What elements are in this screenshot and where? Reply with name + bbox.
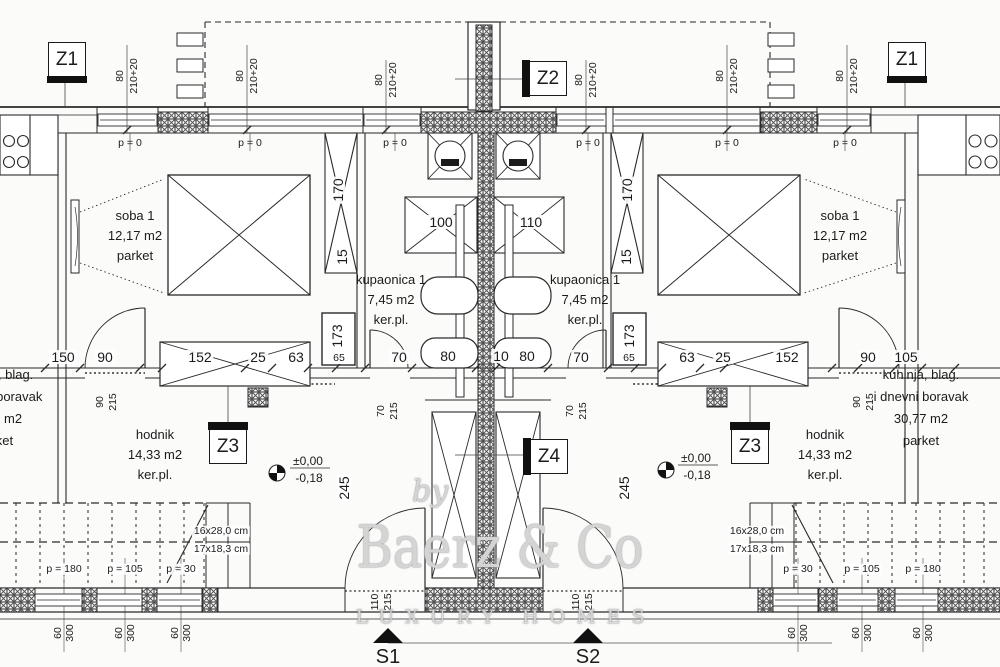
dim-245-right: 245 bbox=[617, 474, 631, 501]
stair-risers1-right: 16x28,0 cm bbox=[728, 526, 786, 537]
dim-60-l1: 60 bbox=[53, 627, 64, 639]
stair-risers2-left: 17x18,3 cm bbox=[192, 544, 250, 555]
room-name: kupaonica 1 bbox=[550, 270, 620, 290]
room-floor: ker.pl. bbox=[128, 465, 182, 485]
dim-p0-5: p = 0 bbox=[715, 138, 739, 149]
marker-z1-text: Z1 bbox=[896, 49, 918, 71]
stair-p105-left: p = 105 bbox=[105, 564, 144, 575]
marker-z2-text: Z2 bbox=[537, 68, 559, 90]
dim-152-left: 152 bbox=[186, 350, 213, 364]
dim-300-l1: 300 bbox=[65, 624, 76, 642]
dim-p0-3: p = 0 bbox=[383, 138, 407, 149]
watermark-name: Baerz & Co bbox=[357, 513, 644, 581]
dim-15-left: 15 bbox=[335, 247, 349, 267]
window-right bbox=[897, 200, 905, 273]
room-floor: parket bbox=[874, 430, 969, 452]
dim-210-5: 210+20 bbox=[729, 58, 740, 93]
pier-left bbox=[248, 388, 268, 407]
room-label-kupaonica-right: kupaonica 1 7,45 m2 ker.pl. bbox=[550, 270, 620, 330]
dim-25-right: 25 bbox=[713, 350, 733, 364]
marker-z1-right: Z1 bbox=[888, 42, 926, 77]
dim-170-right: 170 bbox=[620, 176, 634, 203]
door-90-left: 90 bbox=[95, 396, 106, 408]
elevation-below-left: -0,18 bbox=[295, 472, 322, 484]
bed-right-icon bbox=[658, 175, 800, 295]
stair-p180-left: p = 180 bbox=[44, 564, 83, 575]
dim-300-l3: 300 bbox=[182, 624, 193, 642]
dim-210-3: 210+20 bbox=[388, 62, 399, 97]
pier-right bbox=[707, 388, 727, 407]
room-area: 12,17 m2 bbox=[813, 226, 867, 246]
marker-z3-left: Z3 bbox=[209, 429, 247, 464]
door-room-left bbox=[85, 308, 145, 368]
dim-210-1: 210+20 bbox=[129, 58, 140, 93]
marker-z4: Z4 bbox=[530, 439, 568, 474]
room-label-kuhinja-right: kuhinja, blag. i dnevni boravak 30,77 m2… bbox=[874, 364, 969, 452]
dim-80-2: 80 bbox=[235, 70, 246, 82]
dim-63-right: 63 bbox=[677, 350, 697, 364]
dim-80-bath-right: 80 bbox=[517, 349, 537, 363]
room-area: 7,45 m2 bbox=[550, 290, 620, 310]
s2-triangle bbox=[573, 628, 603, 643]
room-label-kupaonica-left: kupaonica 1 7,45 m2 ker.pl. bbox=[356, 270, 426, 330]
elevation-above-right: ±0,00 bbox=[681, 452, 711, 464]
dim-80-6: 80 bbox=[835, 70, 846, 82]
stair-p30-right: p = 30 bbox=[781, 564, 815, 575]
dim-60-l3: 60 bbox=[170, 627, 181, 639]
room-area: 12,17 m2 bbox=[108, 226, 162, 246]
room-area: 14,33 m2 bbox=[798, 445, 852, 465]
marker-z1-text: Z1 bbox=[56, 49, 78, 71]
door-70-215-right: 215 bbox=[578, 402, 589, 420]
kitchen-right bbox=[918, 115, 1000, 175]
chimney bbox=[468, 22, 500, 111]
marker-bar bbox=[47, 76, 87, 83]
dim-p0-6: p = 0 bbox=[833, 138, 857, 149]
marker-s2: S2 bbox=[576, 647, 600, 667]
marker-z1-left: Z1 bbox=[48, 42, 86, 77]
room-floor: ker.pl. bbox=[798, 465, 852, 485]
room-name2: i dnevni boravak bbox=[874, 386, 969, 408]
hodnik-wall bbox=[0, 368, 1000, 384]
marker-z3-text: Z3 bbox=[739, 436, 761, 458]
stair-p105-right: p = 105 bbox=[842, 564, 881, 575]
dim-60-l2: 60 bbox=[114, 627, 125, 639]
room-name: soba 1 bbox=[813, 206, 867, 226]
marker-z2: Z2 bbox=[529, 61, 567, 96]
room-name: kupaonica 1 bbox=[356, 270, 426, 290]
door-90-right: 90 bbox=[852, 396, 863, 408]
stair-risers1-left: 16x28,0 cm bbox=[192, 526, 250, 537]
marker-z4-text: Z4 bbox=[538, 446, 560, 468]
dim-90-left: 90 bbox=[95, 350, 115, 364]
door-70-left: 70 bbox=[376, 405, 387, 417]
stair-p30-left: p = 30 bbox=[164, 564, 198, 575]
door-70-right: 70 bbox=[565, 405, 576, 417]
dim-150-left: 150 bbox=[49, 350, 76, 364]
dim-173-right: 173 bbox=[622, 322, 636, 349]
window-left bbox=[71, 200, 79, 273]
dim-p0-2: p = 0 bbox=[238, 138, 262, 149]
dim-173-left: 173 bbox=[330, 322, 344, 349]
room-area: 30,77 m2 bbox=[874, 408, 969, 430]
dim-80-1: 80 bbox=[115, 70, 126, 82]
door-70-215-left: 215 bbox=[389, 402, 400, 420]
dim-152-right: 152 bbox=[773, 350, 800, 364]
dim-70-left: 70 bbox=[389, 350, 409, 364]
room-area: 30,77 m2 bbox=[0, 408, 42, 430]
washer-right-icon bbox=[496, 133, 540, 179]
dim-170-left: 170 bbox=[331, 176, 345, 203]
room-name: hodnik bbox=[798, 425, 852, 445]
section-line bbox=[373, 628, 832, 643]
dim-300-l2: 300 bbox=[126, 624, 137, 642]
room-area: 7,45 m2 bbox=[356, 290, 426, 310]
dim-15-right: 15 bbox=[619, 247, 633, 267]
bed-left-icon bbox=[168, 175, 310, 295]
marker-s1: S1 bbox=[376, 647, 400, 667]
room-label-kuhinja-left: kuhinja, blag. i dnevni boravak 30,77 m2… bbox=[0, 364, 42, 452]
dim-60-r2: 60 bbox=[851, 627, 862, 639]
room-label-soba-right: soba 1 12,17 m2 parket bbox=[813, 206, 867, 266]
dim-25-left: 25 bbox=[248, 350, 268, 364]
dim-300-r3: 300 bbox=[924, 624, 935, 642]
room-name: kuhinja, blag. bbox=[0, 364, 42, 386]
kitchen-left bbox=[0, 115, 58, 175]
elevation-below-right: -0,18 bbox=[683, 469, 710, 481]
room-floor: parket bbox=[813, 246, 867, 266]
watermark-by: by bbox=[412, 474, 448, 509]
dim-p0-4: p = 0 bbox=[576, 138, 600, 149]
room-label-soba-left: soba 1 12,17 m2 parket bbox=[108, 206, 162, 266]
room-name: hodnik bbox=[128, 425, 182, 445]
marker-bar bbox=[887, 76, 927, 83]
room-area: 14,33 m2 bbox=[128, 445, 182, 465]
dim-63-left: 63 bbox=[286, 350, 306, 364]
marker-z3-text: Z3 bbox=[217, 436, 239, 458]
room-floor: parket bbox=[0, 430, 42, 452]
s1-triangle bbox=[373, 628, 403, 643]
marker-bar bbox=[730, 422, 770, 430]
washer-left-icon bbox=[428, 133, 472, 179]
dim-p0-1: p = 0 bbox=[118, 138, 142, 149]
watermark-tagline: LUXURY HOMES bbox=[345, 606, 656, 628]
dim-65-left: 65 bbox=[331, 353, 347, 364]
dim-105-right: 105 bbox=[892, 350, 919, 364]
stair-p180-right: p = 180 bbox=[903, 564, 942, 575]
dim-10-center: 10 bbox=[491, 349, 511, 363]
marker-bar bbox=[522, 60, 530, 97]
room-name: soba 1 bbox=[108, 206, 162, 226]
top-wall bbox=[0, 107, 1000, 133]
dim-90-right: 90 bbox=[858, 350, 878, 364]
room-name2: i dnevni boravak bbox=[0, 386, 42, 408]
dim-80-bath-left: 80 bbox=[438, 349, 458, 363]
dim-300-r2: 300 bbox=[863, 624, 874, 642]
dim-65-right: 65 bbox=[621, 353, 637, 364]
dim-210-6: 210+20 bbox=[849, 58, 860, 93]
room-floor: ker.pl. bbox=[356, 310, 426, 330]
dim-245-left: 245 bbox=[337, 474, 351, 501]
room-name: kuhinja, blag. bbox=[874, 364, 969, 386]
room-label-hodnik-right: hodnik 14,33 m2 ker.pl. bbox=[798, 425, 852, 485]
dim-80-4: 80 bbox=[574, 74, 585, 86]
dim-60-r3: 60 bbox=[912, 627, 923, 639]
room-floor: parket bbox=[108, 246, 162, 266]
door-215-left: 215 bbox=[108, 393, 119, 411]
marker-bar bbox=[523, 438, 531, 475]
marker-bar bbox=[208, 422, 248, 430]
dim-80-5: 80 bbox=[715, 70, 726, 82]
elevation-above-left: ±0,00 bbox=[293, 455, 323, 467]
dim-60-r1: 60 bbox=[787, 627, 798, 639]
dim-210-2: 210+20 bbox=[249, 58, 260, 93]
room-floor: ker.pl. bbox=[550, 310, 620, 330]
floorplan-page: p = 0 p = 0 p = 0 p = 0 p = 0 p = 0 80 2… bbox=[0, 0, 1000, 667]
stair-risers2-right: 17x18,3 cm bbox=[728, 544, 786, 555]
dim-110-shower: 110 bbox=[518, 215, 544, 229]
dim-80-3: 80 bbox=[374, 74, 385, 86]
dim-210-4: 210+20 bbox=[588, 62, 599, 97]
dim-100-shower: 100 bbox=[427, 215, 454, 229]
marker-z3-right: Z3 bbox=[731, 429, 769, 464]
dim-70-right: 70 bbox=[571, 350, 591, 364]
room-label-hodnik-left: hodnik 14,33 m2 ker.pl. bbox=[128, 425, 182, 485]
dim-300-r1: 300 bbox=[799, 624, 810, 642]
